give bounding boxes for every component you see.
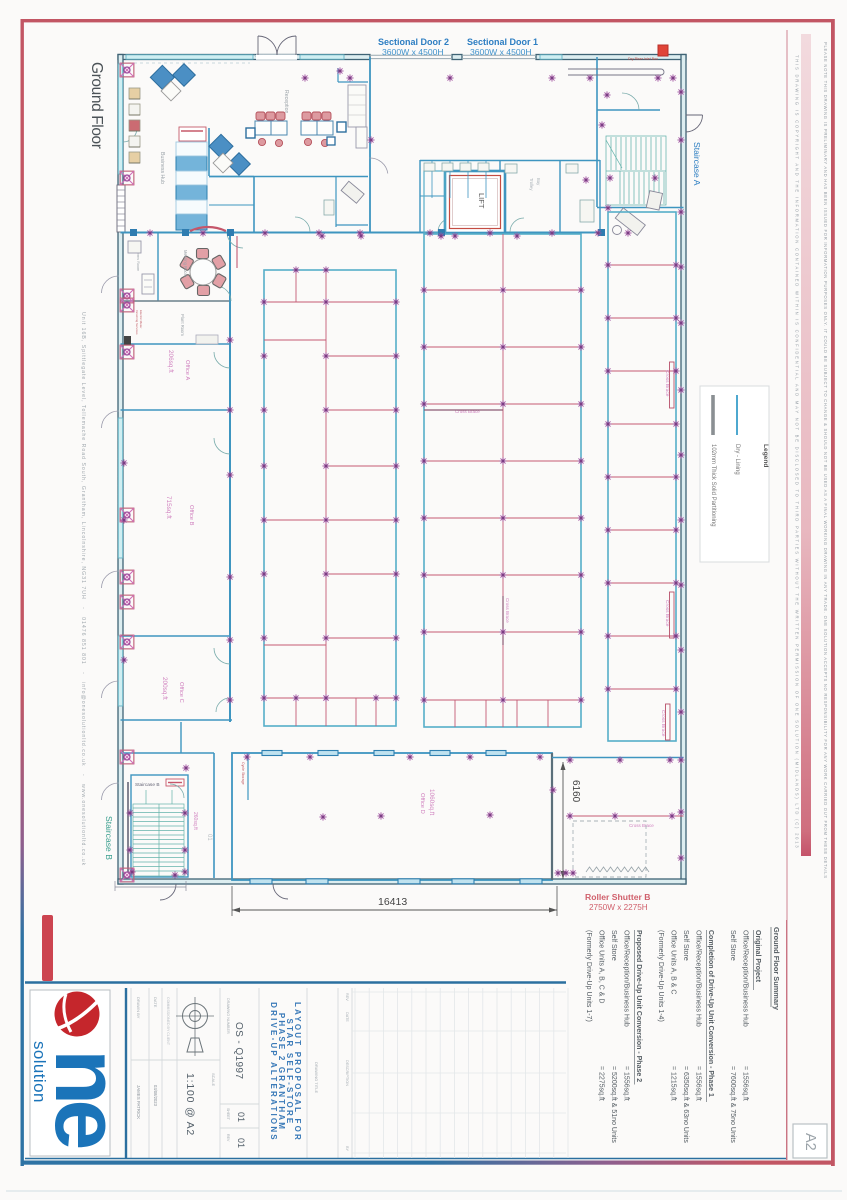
svg-text:DATE: DATE <box>153 997 158 1008</box>
svg-text:715sq.ft: 715sq.ft <box>165 496 172 519</box>
svg-text:Business Hub: Business Hub <box>159 152 165 184</box>
svg-text:DRAWING TITLE: DRAWING TITLE <box>314 1062 319 1093</box>
svg-text:3600W x 4500H: 3600W x 4500H <box>470 47 532 57</box>
svg-text:Meeting Room: Meeting Room <box>183 250 188 278</box>
svg-text:A2: A2 <box>802 1133 818 1151</box>
svg-text:Office/Reception/Business Hub: Office/Reception/Business Hub <box>623 930 630 1027</box>
svg-text:Ground Floor Summary: Ground Floor Summary <box>772 927 781 1011</box>
svg-text:JAMES PATRICK: JAMES PATRICK <box>136 1085 141 1119</box>
svg-text:1060sq.ft: 1060sq.ft <box>428 789 435 816</box>
svg-text:Office Units A, B & C: Office Units A, B & C <box>670 930 677 994</box>
svg-text:Cycle Storage: Cycle Storage <box>241 762 245 785</box>
svg-text:PLEASE NOTE THIS DRAWING IS PR: PLEASE NOTE THIS DRAWING IS PRELIMINARY … <box>823 42 828 879</box>
svg-text:THIS DRAWING IS COPYRIGHT AND: THIS DRAWING IS COPYRIGHT AND THE INFORM… <box>795 55 800 849</box>
svg-text:REV: REV <box>345 993 349 1001</box>
svg-text:Staircase B: Staircase B <box>104 816 114 860</box>
svg-text:Self Store: Self Store <box>610 930 617 961</box>
svg-text:Office/Reception/Business Hub: Office/Reception/Business Hub <box>742 930 749 1027</box>
svg-text:Cross Brace: Cross Brace <box>505 598 510 623</box>
svg-text:01: 01 <box>236 1112 246 1122</box>
svg-text:Sectional Door 1: Sectional Door 1 <box>467 37 538 47</box>
svg-text:solution: solution <box>30 1041 49 1103</box>
svg-text:3600W x 4500H: 3600W x 4500H <box>382 47 444 57</box>
svg-text:Dry - Lining: Dry - Lining <box>734 444 740 475</box>
svg-text:OS - Q1997: OS - Q1997 <box>233 1022 244 1079</box>
svg-text:16413: 16413 <box>378 896 407 908</box>
svg-text:Self Store: Self Store <box>729 930 736 961</box>
svg-text:1:100 @ A2: 1:100 @ A2 <box>184 1073 196 1136</box>
svg-text:2750W x 2275H: 2750W x 2275H <box>589 903 648 912</box>
svg-text:SCALE: SCALE <box>211 1073 216 1086</box>
svg-text:BY: BY <box>345 1146 349 1152</box>
svg-text:LIFT: LIFT <box>477 193 486 209</box>
svg-text:REV: REV <box>226 1134 230 1142</box>
svg-text:Office A: Office A <box>184 360 190 380</box>
svg-text:= 1556sq.ft: = 1556sq.ft <box>742 1066 749 1101</box>
svg-text:Sectional Door 2: Sectional Door 2 <box>378 37 449 47</box>
svg-text:Legend: Legend <box>762 444 769 467</box>
svg-text:Cross Brace: Cross Brace <box>629 823 654 828</box>
svg-text:Proposed Drive-Up Unit Convers: Proposed Drive-Up Unit Conversion - Phas… <box>635 930 642 1082</box>
svg-text:200sq.ft: 200sq.ft <box>161 677 168 700</box>
svg-text:SHEET: SHEET <box>226 1108 230 1121</box>
svg-text:Dry Riser Inlet Box: Dry Riser Inlet Box <box>628 57 658 61</box>
svg-text:COMMISSIONED BY CLIENT: COMMISSIONED BY CLIENT <box>166 997 170 1046</box>
svg-text:Office B: Office B <box>188 505 194 526</box>
svg-text:Original Project: Original Project <box>754 930 761 983</box>
svg-text:(Formerly Drive-Up Units 1-4): (Formerly Drive-Up Units 1-4) <box>657 930 664 1022</box>
svg-text:01: 01 <box>206 834 212 841</box>
svg-text:206sq.ft: 206sq.ft <box>167 350 174 373</box>
svg-text:ne: ne <box>36 1049 138 1148</box>
svg-text:Office C: Office C <box>178 682 184 703</box>
svg-text:(Formerly Drive-Up Units 1-7): (Formerly Drive-Up Units 1-7) <box>585 930 592 1022</box>
svg-text:DATE: DATE <box>345 1012 349 1022</box>
svg-text:Ground Floor: Ground Floor <box>88 62 105 149</box>
svg-text:Office/Reception/Business Hub: Office/Reception/Business Hub <box>695 930 702 1027</box>
svg-text:Office Units A, B, C & D: Office Units A, B, C & D <box>598 930 605 1003</box>
svg-text:DESCRIPTION: DESCRIPTION <box>345 1060 349 1086</box>
svg-text:Completion of Drive-Up Unit Co: Completion of Drive-Up Unit Conversion -… <box>707 930 714 1097</box>
svg-text:= 1556sq.ft: = 1556sq.ft <box>623 1066 630 1101</box>
svg-text:Electric Meter: Electric Meter <box>139 310 143 328</box>
svg-text:= 1556sq.ft: = 1556sq.ft <box>695 1066 702 1101</box>
svg-text:= 5200sq.ft & 51no Units: = 5200sq.ft & 51no Units <box>610 1066 617 1143</box>
svg-text:Roller Shutter B: Roller Shutter B <box>585 892 650 902</box>
svg-text:260sq.ft: 260sq.ft <box>192 812 198 830</box>
svg-text:Staircase A: Staircase A <box>692 142 702 186</box>
svg-text:= 7600sq.ft & 75no Units: = 7600sq.ft & 75no Units <box>729 1066 736 1143</box>
svg-text:03/08/2023: 03/08/2023 <box>153 1085 158 1107</box>
svg-text:= 2275sq.ft: = 2275sq.ft <box>598 1066 605 1101</box>
svg-text:Office D: Office D <box>419 793 425 814</box>
svg-text:102mm Thick Solid Partitioning: 102mm Thick Solid Partitioning <box>710 444 716 527</box>
svg-text:Reception: Reception <box>283 90 289 113</box>
svg-text:Plant Room: Plant Room <box>180 314 185 336</box>
svg-text:DRIVE-UP ALTERATIONS: DRIVE-UP ALTERATIONS <box>269 1002 278 1142</box>
svg-text:Self Store: Self Store <box>682 930 689 961</box>
svg-text:= 1215sq.ft: = 1215sq.ft <box>670 1066 677 1101</box>
svg-text:DRAWN BY: DRAWN BY <box>136 997 141 1019</box>
svg-text:Unit 16B, Spittlegate Level, T: Unit 16B, Spittlegate Level, Tollemache … <box>80 312 86 866</box>
svg-text:= 6350sq.ft & 63no Units: = 6350sq.ft & 63no Units <box>682 1066 689 1143</box>
svg-text:6160: 6160 <box>570 780 581 803</box>
svg-text:Incoming Services: Incoming Services <box>135 310 139 335</box>
svg-text:DRAWING NUMBER: DRAWING NUMBER <box>226 998 230 1034</box>
svg-text:Staircase B: Staircase B <box>135 782 160 788</box>
svg-text:01: 01 <box>236 1138 246 1148</box>
svg-text:Trolley: Trolley <box>529 178 534 191</box>
svg-text:Bay: Bay <box>536 178 541 186</box>
